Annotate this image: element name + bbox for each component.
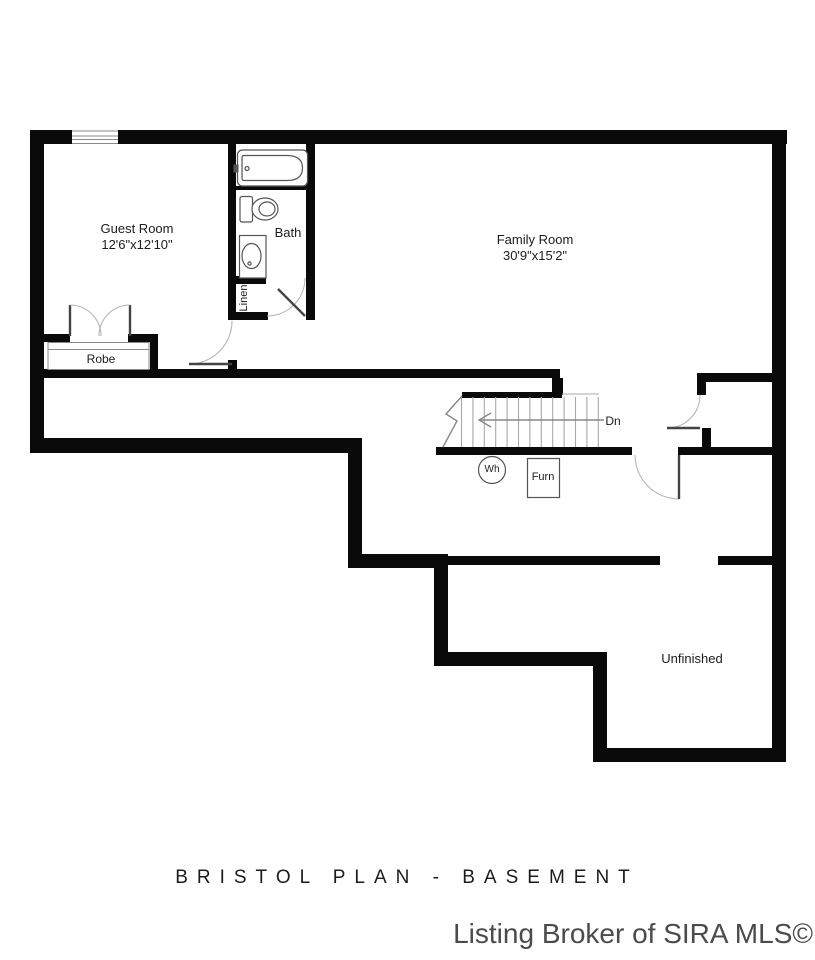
bathtub bbox=[234, 150, 308, 186]
bath-label: Bath bbox=[275, 225, 302, 241]
robe-double-doors bbox=[70, 305, 130, 336]
furnace-label: Furn bbox=[532, 471, 555, 483]
bath-door bbox=[267, 278, 305, 316]
window bbox=[72, 130, 118, 144]
landing-upper-door bbox=[667, 395, 700, 428]
stairs-down-label: Dn bbox=[605, 413, 620, 429]
doors bbox=[70, 278, 700, 499]
toilet bbox=[240, 197, 278, 223]
family-room-name: Family Room bbox=[497, 232, 574, 248]
guest-room-name: Guest Room bbox=[101, 221, 174, 237]
guest-room-label: Guest Room 12'6"x12'10" bbox=[101, 221, 174, 253]
tub-faucet bbox=[234, 165, 239, 173]
linen-label: Linen bbox=[236, 285, 252, 312]
guest-room-dims: 12'6"x12'10" bbox=[101, 237, 174, 253]
floor-plan: Guest Room 12'6"x12'10" Bath Linen Robe … bbox=[0, 0, 815, 960]
guest-room-door bbox=[189, 321, 232, 364]
family-room-label: Family Room 30'9"x15'2" bbox=[497, 232, 574, 264]
robe-label: Robe bbox=[87, 351, 116, 367]
plan-title: BRISTOL PLAN - BASEMENT bbox=[175, 867, 639, 889]
listing-watermark: Listing Broker of SIRA MLS© bbox=[453, 918, 813, 950]
water-heater-label: Wh bbox=[485, 462, 500, 478]
unfinished-label: Unfinished bbox=[661, 651, 722, 667]
interior-walls bbox=[30, 144, 772, 565]
landing-lower-door bbox=[635, 455, 679, 499]
vanity-sink bbox=[240, 236, 267, 279]
stair-break-line bbox=[443, 396, 462, 447]
floor-plan-drawing bbox=[0, 0, 815, 960]
family-room-dims: 30'9"x15'2" bbox=[497, 248, 574, 264]
